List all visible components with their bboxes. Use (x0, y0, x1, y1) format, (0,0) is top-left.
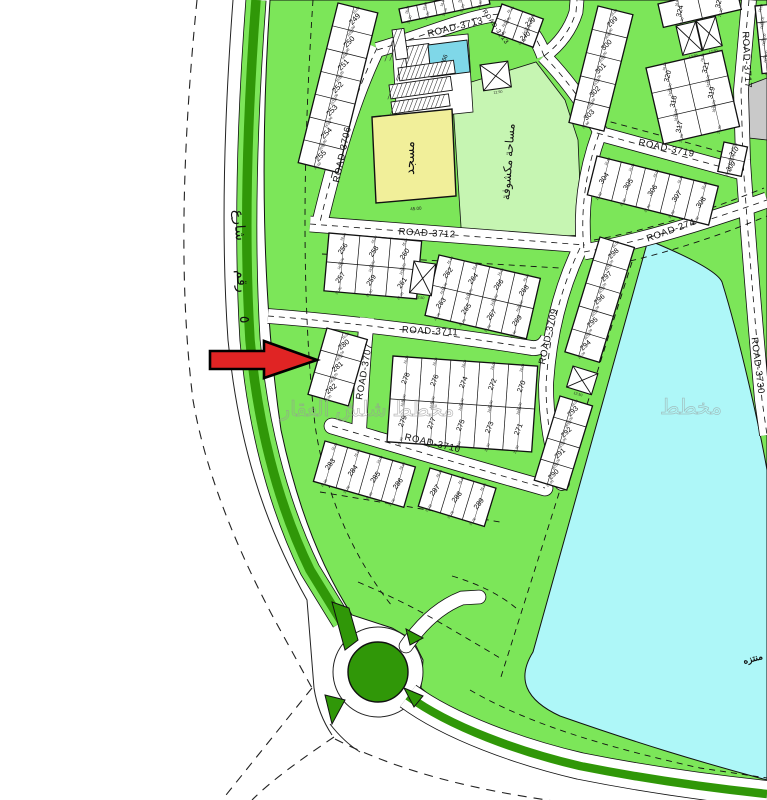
svg-text:مخطط شلش العقار: مخطط شلش العقار (279, 398, 454, 422)
svg-text:٥: ٥ (237, 316, 253, 324)
svg-text:مسجد: مسجد (402, 141, 417, 175)
svg-text:رقم: رقم (233, 270, 251, 293)
svg-text:شارع: شارع (230, 209, 249, 241)
svg-text:مخطط: مخطط (660, 396, 722, 419)
svg-text:45.00: 45.00 (410, 205, 422, 211)
